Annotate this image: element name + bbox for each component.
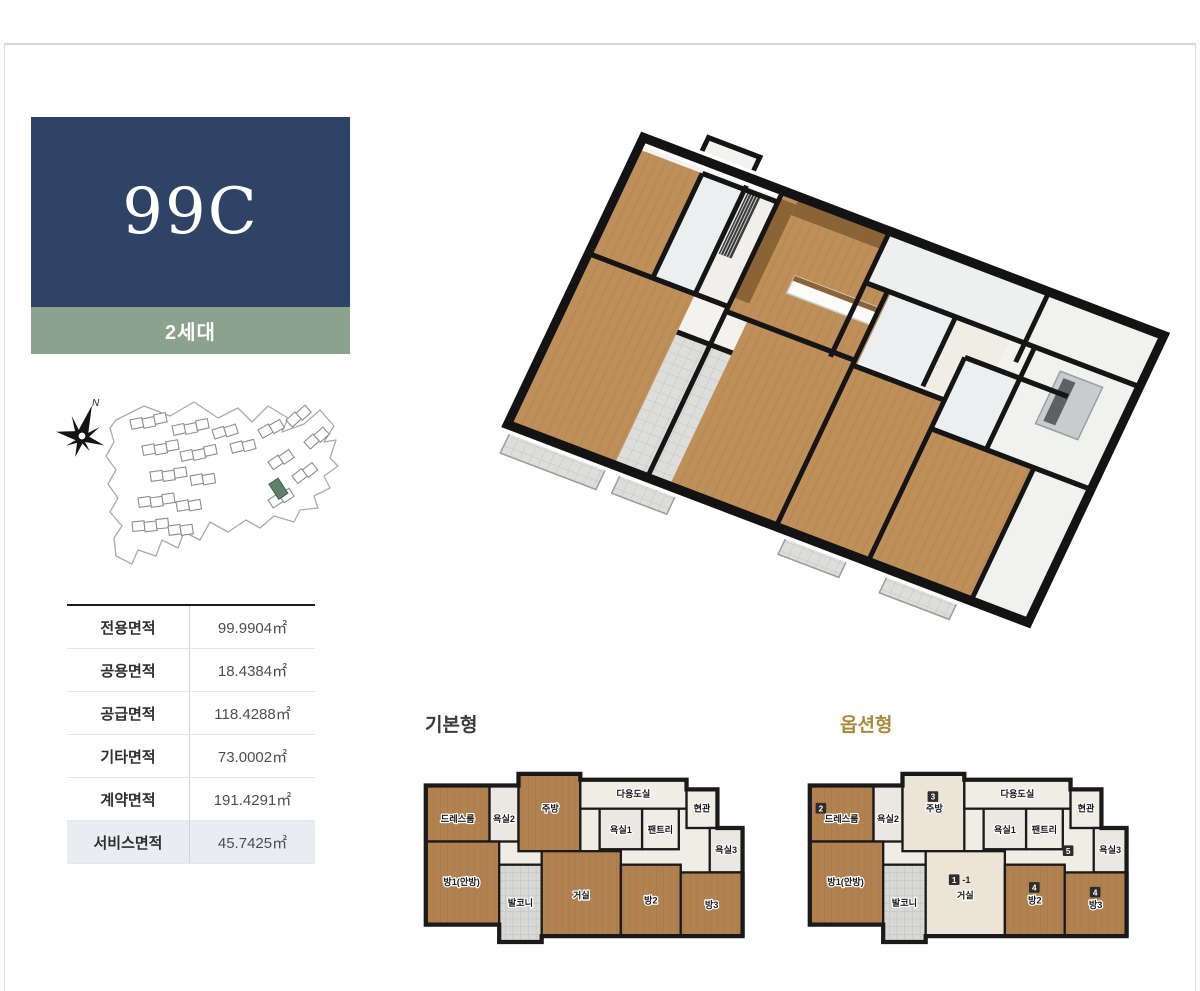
- unit-code-text: 99C: [122, 175, 258, 249]
- area-label: 서비스면적: [67, 821, 190, 864]
- iso-plan-group: [495, 117, 1174, 650]
- option-badge-suffix: -1: [962, 875, 970, 885]
- option-badge-number: 2: [819, 804, 824, 813]
- area-label: 공급면적: [67, 692, 190, 735]
- area-table-row: 공급면적118.4288㎡: [67, 692, 315, 735]
- room-label: 방1(안방): [443, 876, 479, 887]
- isometric-floorplan-svg: [418, 96, 1180, 700]
- household-count-band: 2세대: [31, 307, 350, 354]
- room-label: 방3: [705, 899, 719, 910]
- room-label: 주방: [542, 803, 559, 814]
- room-label: 욕실2: [493, 813, 515, 824]
- area-table-body: 전용면적99.9904㎡공용면적18.4384㎡공급면적118.4288㎡기타면…: [67, 605, 315, 864]
- option-floorplan-2d: 드레스룸욕실2주방다용도실현관욕실1팬트리욕실3방1(안방)발코니거실방2방32…: [804, 756, 1142, 956]
- floorplan-page: 99C 2세대 N 전용면적99.9904㎡공용면적18.4384㎡공급면적11…: [0, 0, 1200, 991]
- unit-type-badge: 99C: [31, 117, 350, 307]
- area-value: 99.9904㎡: [190, 605, 316, 649]
- area-label: 계약면적: [67, 778, 190, 821]
- area-label: 전용면적: [67, 605, 190, 649]
- area-label: 기타면적: [67, 735, 190, 778]
- option-badge-number: 1: [952, 876, 957, 885]
- option-badge-number: 4: [1093, 888, 1098, 897]
- area-value: 191.4291㎡: [190, 778, 316, 821]
- area-value: 18.4384㎡: [190, 649, 316, 692]
- basic-plan-title: 기본형: [425, 710, 477, 737]
- room-label: 주방: [926, 803, 943, 814]
- compass-icon: N: [52, 398, 115, 465]
- room-label: 다용도실: [617, 788, 651, 799]
- room-label: 방2: [644, 894, 658, 905]
- area-table-row: 전용면적99.9904㎡: [67, 605, 315, 649]
- area-table-row: 계약면적191.4291㎡: [67, 778, 315, 821]
- area-table-row: 기타면적73.0002㎡: [67, 735, 315, 778]
- area-label: 공용면적: [67, 649, 190, 692]
- room-label: 방1(안방): [827, 876, 863, 887]
- option-badge-number: 3: [931, 793, 936, 802]
- room-label: 드레스룸: [825, 813, 859, 824]
- room-label: 거실: [573, 889, 590, 900]
- room-label: 욕실3: [715, 844, 737, 855]
- area-value: 45.7425㎡: [190, 821, 316, 864]
- room-label: 욕실1: [610, 824, 632, 835]
- room-label: 팬트리: [648, 824, 673, 835]
- room-label: 욕실3: [1099, 844, 1121, 855]
- area-value: 73.0002㎡: [190, 735, 316, 778]
- option-plan-title: 옵션형: [840, 710, 892, 737]
- area-table: 전용면적99.9904㎡공용면적18.4384㎡공급면적118.4288㎡기타면…: [67, 604, 315, 864]
- room-label: 현관: [694, 803, 711, 814]
- area-value: 118.4288㎡: [190, 692, 316, 735]
- room-label: 방2: [1028, 894, 1042, 905]
- room-label: 팬트리: [1032, 824, 1057, 835]
- svg-text:N: N: [92, 398, 100, 409]
- option-badge-number: 4: [1032, 883, 1037, 892]
- room-label: 욕실2: [877, 813, 899, 824]
- basic-floorplan-2d: 드레스룸욕실2주방다용도실현관욕실1팬트리욕실3방1(안방)발코니거실방2방3: [420, 756, 758, 956]
- room-label: 방3: [1089, 899, 1103, 910]
- room-label: 발코니: [508, 897, 533, 908]
- room-label: 발코니: [892, 897, 917, 908]
- household-count-text: 2세대: [165, 316, 216, 345]
- room-label: 현관: [1078, 803, 1095, 814]
- isometric-floorplan-3d: [418, 96, 1180, 700]
- room-label: 드레스룸: [441, 813, 475, 824]
- site-location-map: N: [52, 388, 344, 574]
- room-label: 거실: [957, 889, 974, 900]
- room-label: 욕실1: [994, 824, 1016, 835]
- area-table-row: 공용면적18.4384㎡: [67, 649, 315, 692]
- room-label: 다용도실: [1001, 788, 1035, 799]
- area-table-row: 서비스면적45.7425㎡: [67, 821, 315, 864]
- option-badge-number: 5: [1066, 847, 1071, 856]
